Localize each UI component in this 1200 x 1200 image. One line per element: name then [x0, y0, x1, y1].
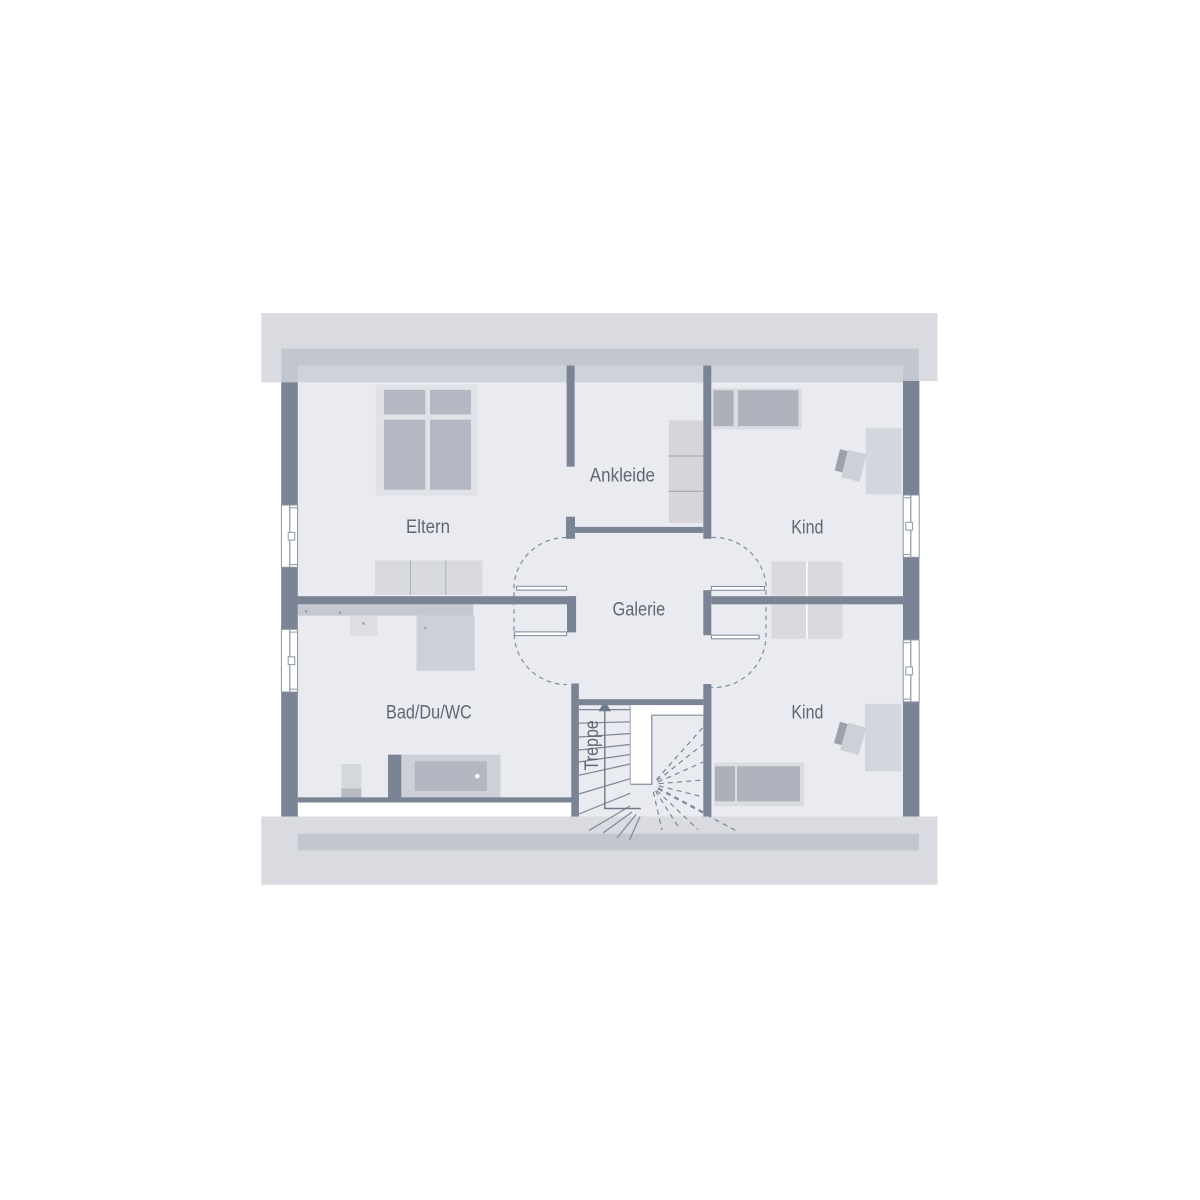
- svg-text:Kind: Kind: [791, 701, 823, 723]
- svg-text:Treppe: Treppe: [581, 720, 603, 770]
- svg-text:Galerie: Galerie: [613, 598, 666, 620]
- svg-text:Ankleide: Ankleide: [590, 464, 655, 486]
- svg-text:Eltern: Eltern: [406, 516, 450, 538]
- svg-text:Bad/Du/WC: Bad/Du/WC: [386, 701, 472, 723]
- svg-text:Kind: Kind: [791, 516, 823, 538]
